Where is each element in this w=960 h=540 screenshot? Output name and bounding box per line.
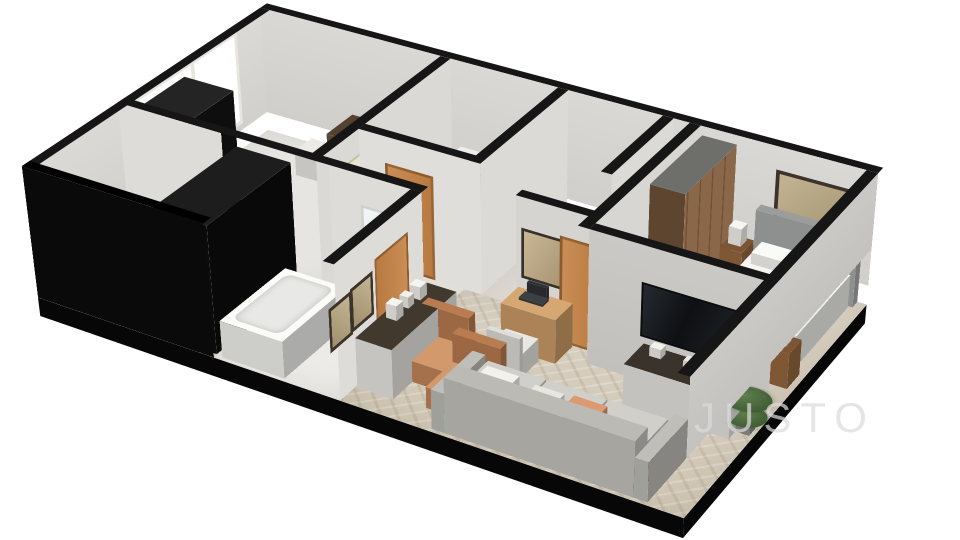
camera-wrapper [0,0,960,540]
watermark: JUSTO [694,394,876,442]
floorplan-render: JUSTO [0,0,960,540]
apartment-3d-scene [38,130,867,518]
